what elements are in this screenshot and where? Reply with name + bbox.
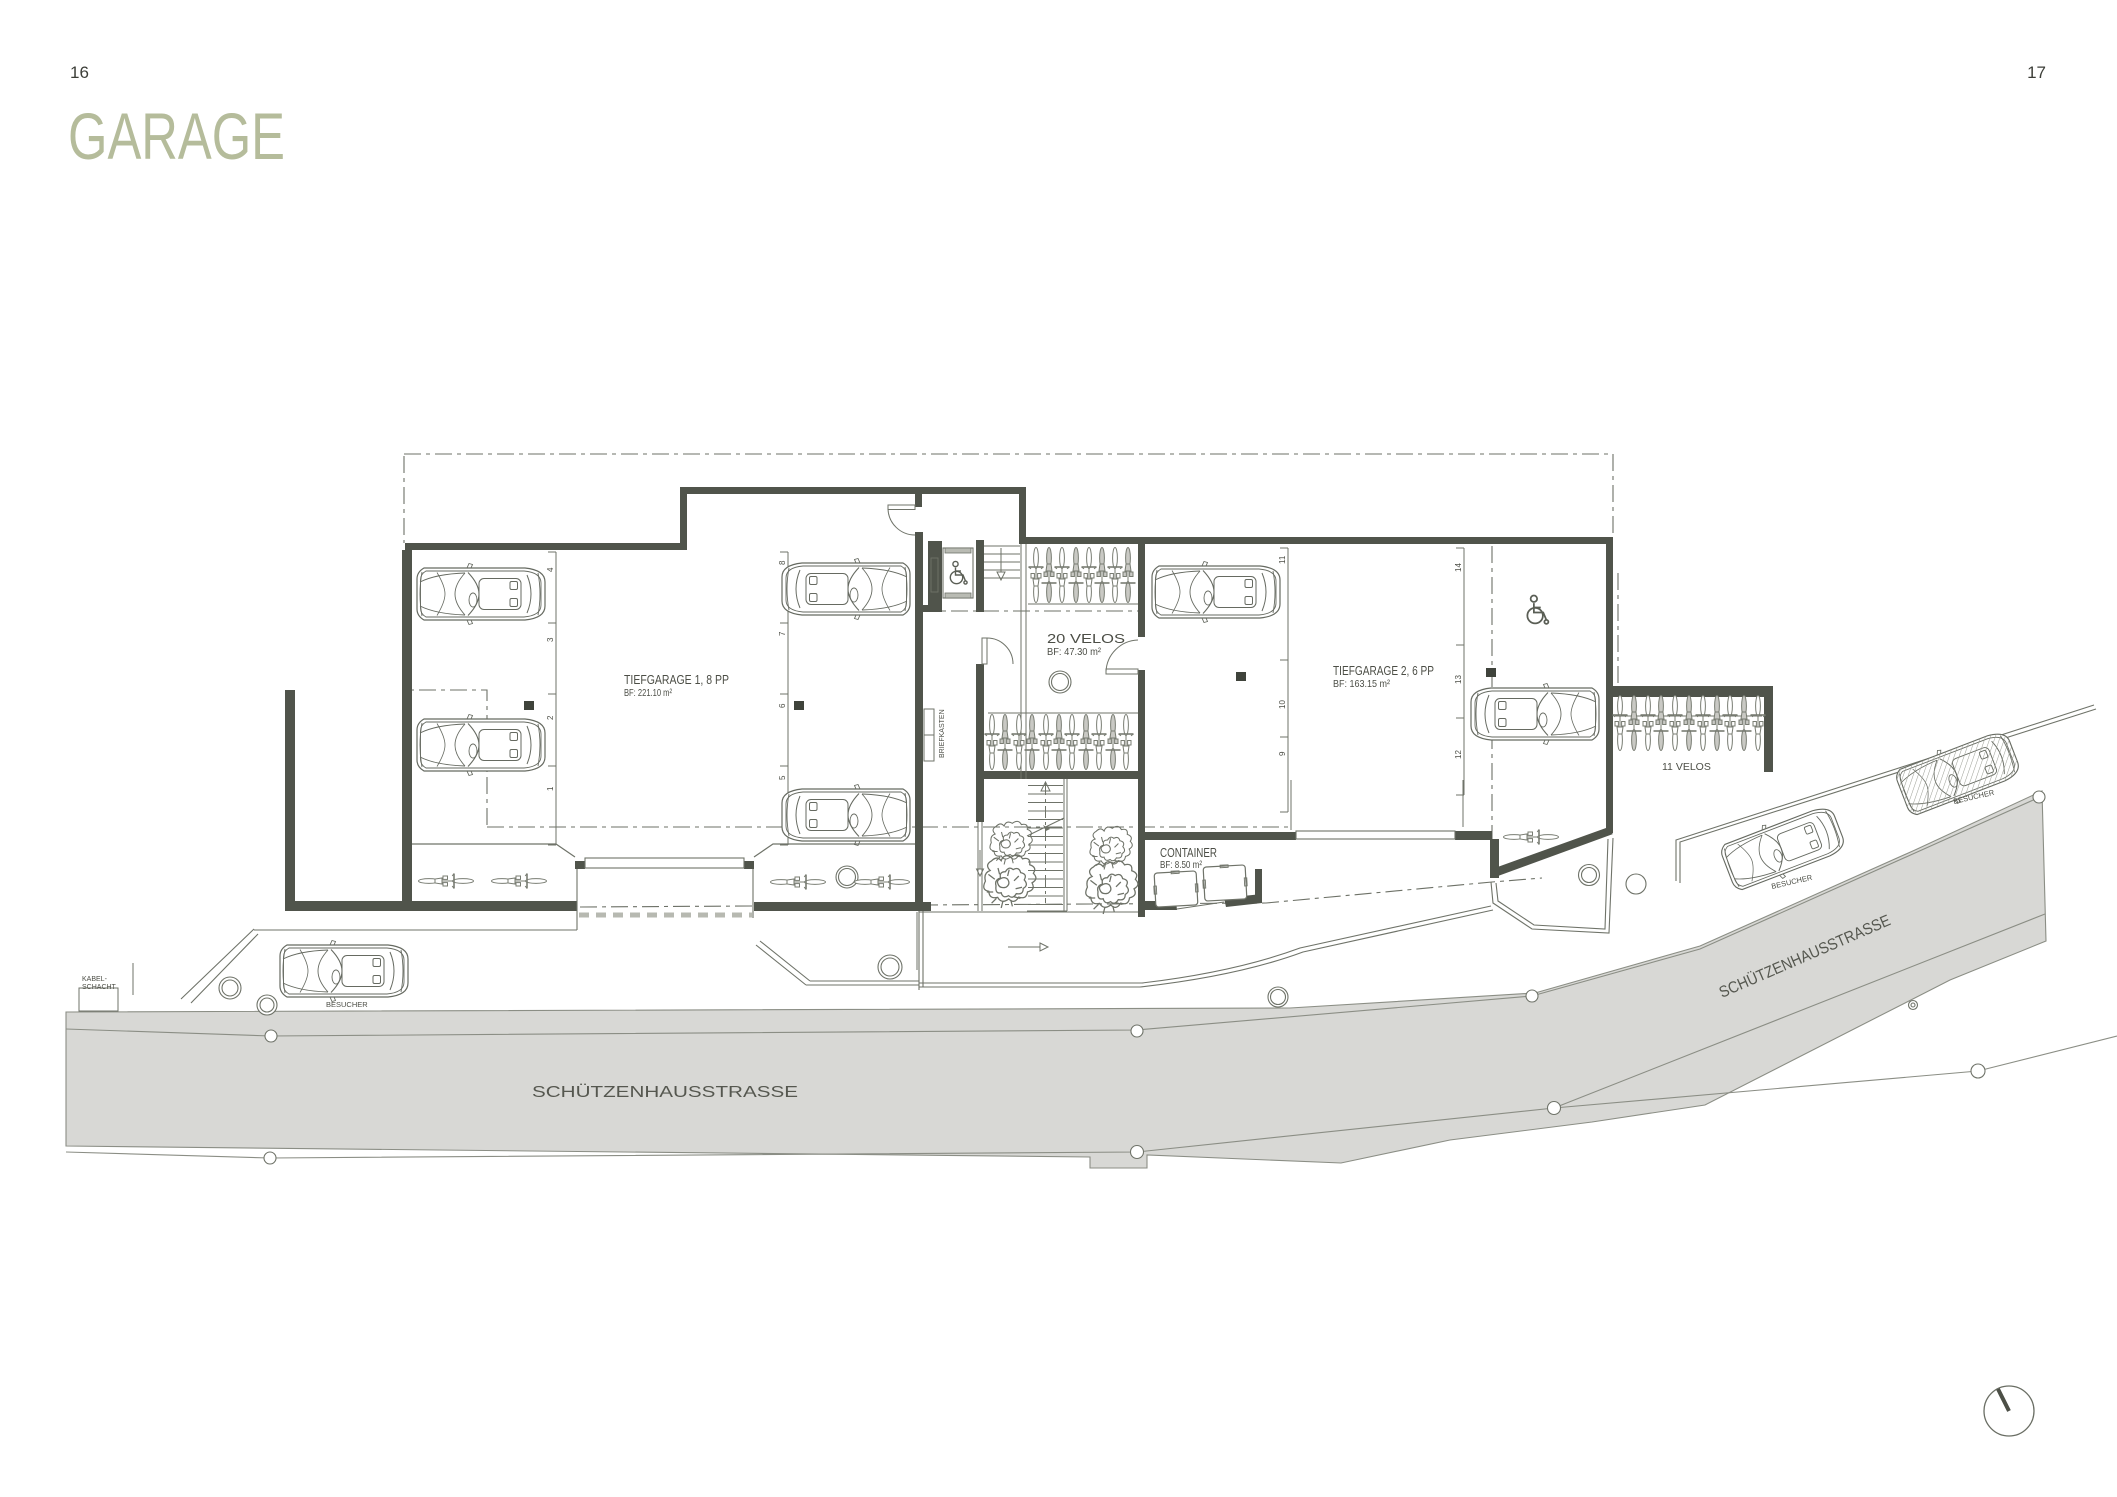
svg-text:3: 3 bbox=[546, 637, 555, 642]
svg-text:SCHÜTZENHAUSSTRASSE: SCHÜTZENHAUSSTRASSE bbox=[532, 1083, 798, 1101]
svg-text:1: 1 bbox=[546, 786, 555, 791]
svg-text:7: 7 bbox=[778, 631, 787, 636]
svg-text:17: 17 bbox=[2027, 63, 2046, 82]
svg-text:BF: 8.50 m²: BF: 8.50 m² bbox=[1160, 859, 1202, 871]
svg-text:8: 8 bbox=[778, 560, 787, 565]
svg-text:13: 13 bbox=[1454, 675, 1463, 684]
svg-text:BESUCHER: BESUCHER bbox=[326, 1000, 368, 1009]
svg-text:2: 2 bbox=[546, 715, 555, 720]
svg-text:4: 4 bbox=[546, 567, 555, 572]
svg-text:BF: 47.30 m²: BF: 47.30 m² bbox=[1047, 646, 1101, 658]
svg-text:SCHACHT: SCHACHT bbox=[82, 984, 117, 991]
svg-text:10: 10 bbox=[1278, 700, 1287, 709]
svg-text:CONTAINER: CONTAINER bbox=[1160, 846, 1217, 860]
svg-text:BF: 163.15 m²: BF: 163.15 m² bbox=[1333, 678, 1390, 690]
svg-text:BRIEFKASTEN: BRIEFKASTEN bbox=[939, 709, 946, 758]
svg-text:BF: 221.10 m²: BF: 221.10 m² bbox=[624, 687, 672, 699]
svg-text:12: 12 bbox=[1454, 750, 1463, 759]
svg-text:TIEFGARAGE 1, 8 PP: TIEFGARAGE 1, 8 PP bbox=[624, 672, 729, 687]
svg-text:16: 16 bbox=[70, 63, 89, 82]
svg-text:5: 5 bbox=[778, 775, 787, 780]
svg-text:11: 11 bbox=[1278, 555, 1287, 564]
svg-text:6: 6 bbox=[778, 703, 787, 708]
svg-text:11 VELOS: 11 VELOS bbox=[1662, 761, 1711, 773]
svg-text:9: 9 bbox=[1278, 751, 1287, 756]
svg-text:TIEFGARAGE 2, 6 PP: TIEFGARAGE 2, 6 PP bbox=[1333, 663, 1434, 678]
svg-text:20 VELOS: 20 VELOS bbox=[1047, 632, 1125, 646]
svg-text:14: 14 bbox=[1454, 563, 1463, 572]
svg-text:GARAGE: GARAGE bbox=[68, 99, 285, 173]
svg-text:KABEL-: KABEL- bbox=[82, 976, 108, 983]
